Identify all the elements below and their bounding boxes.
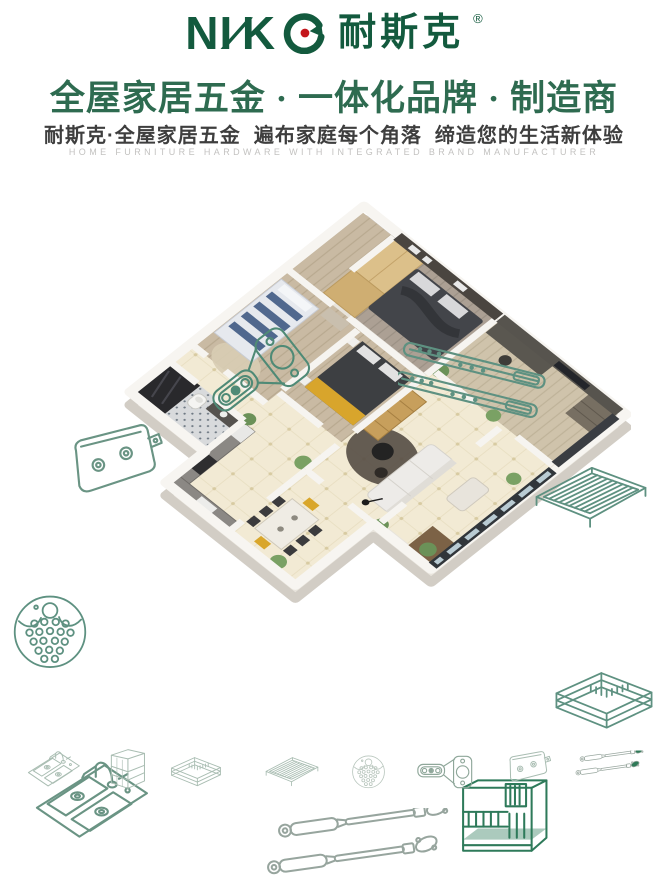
hardware-glass-clamp: [65, 419, 166, 506]
headline: 全屋家居五金 · 一体化品牌 · 制造商: [0, 70, 668, 121]
hardware-drawer-slides: [398, 320, 554, 422]
product-icon-perforated-disc: [350, 753, 387, 790]
logo-latin: NI∕K: [185, 10, 276, 56]
subheadline: 耐斯克·全屋家居五金 遍布家庭每个角落 缔造您的生活新体验: [0, 119, 668, 148]
logo-latin-k: K: [242, 7, 276, 59]
hardware-wire-shelf: [532, 460, 650, 532]
poster: NI∕K 耐斯克 ® 全屋家居五金 · 一体化品牌 · 制造商 耐斯克·全屋家居…: [0, 0, 668, 800]
scene: [0, 160, 668, 732]
logo-latin-ni: NI: [185, 7, 233, 59]
product-icon-glass-clamp: [506, 748, 551, 788]
product-icon-wire-shelf: [264, 754, 320, 788]
registered-mark: ®: [473, 11, 483, 26]
product-icon-cabinet-hinge: [414, 752, 476, 792]
hardware-perforated-disc: [8, 590, 92, 672]
product-icon-wire-basket: [166, 754, 226, 792]
hardware-wire-basket: [552, 666, 656, 740]
brand-logo: NI∕K 耐斯克 ®: [0, 10, 668, 56]
apartment-floorplan-render: [86, 198, 631, 698]
logo-chinese: 耐斯克: [338, 10, 464, 56]
tagline-english: HOME FURNITURE HARDWARE WITH INTEGRATED …: [0, 147, 668, 157]
product-icon-kitchen-sink: [22, 744, 84, 794]
logo-o-icon: [283, 12, 325, 54]
hardware-gas-struts: [256, 808, 462, 896]
product-icon-gas-struts: [574, 740, 646, 794]
product-strip: [0, 736, 668, 798]
product-icon-cabinet-organizer: [104, 746, 150, 792]
